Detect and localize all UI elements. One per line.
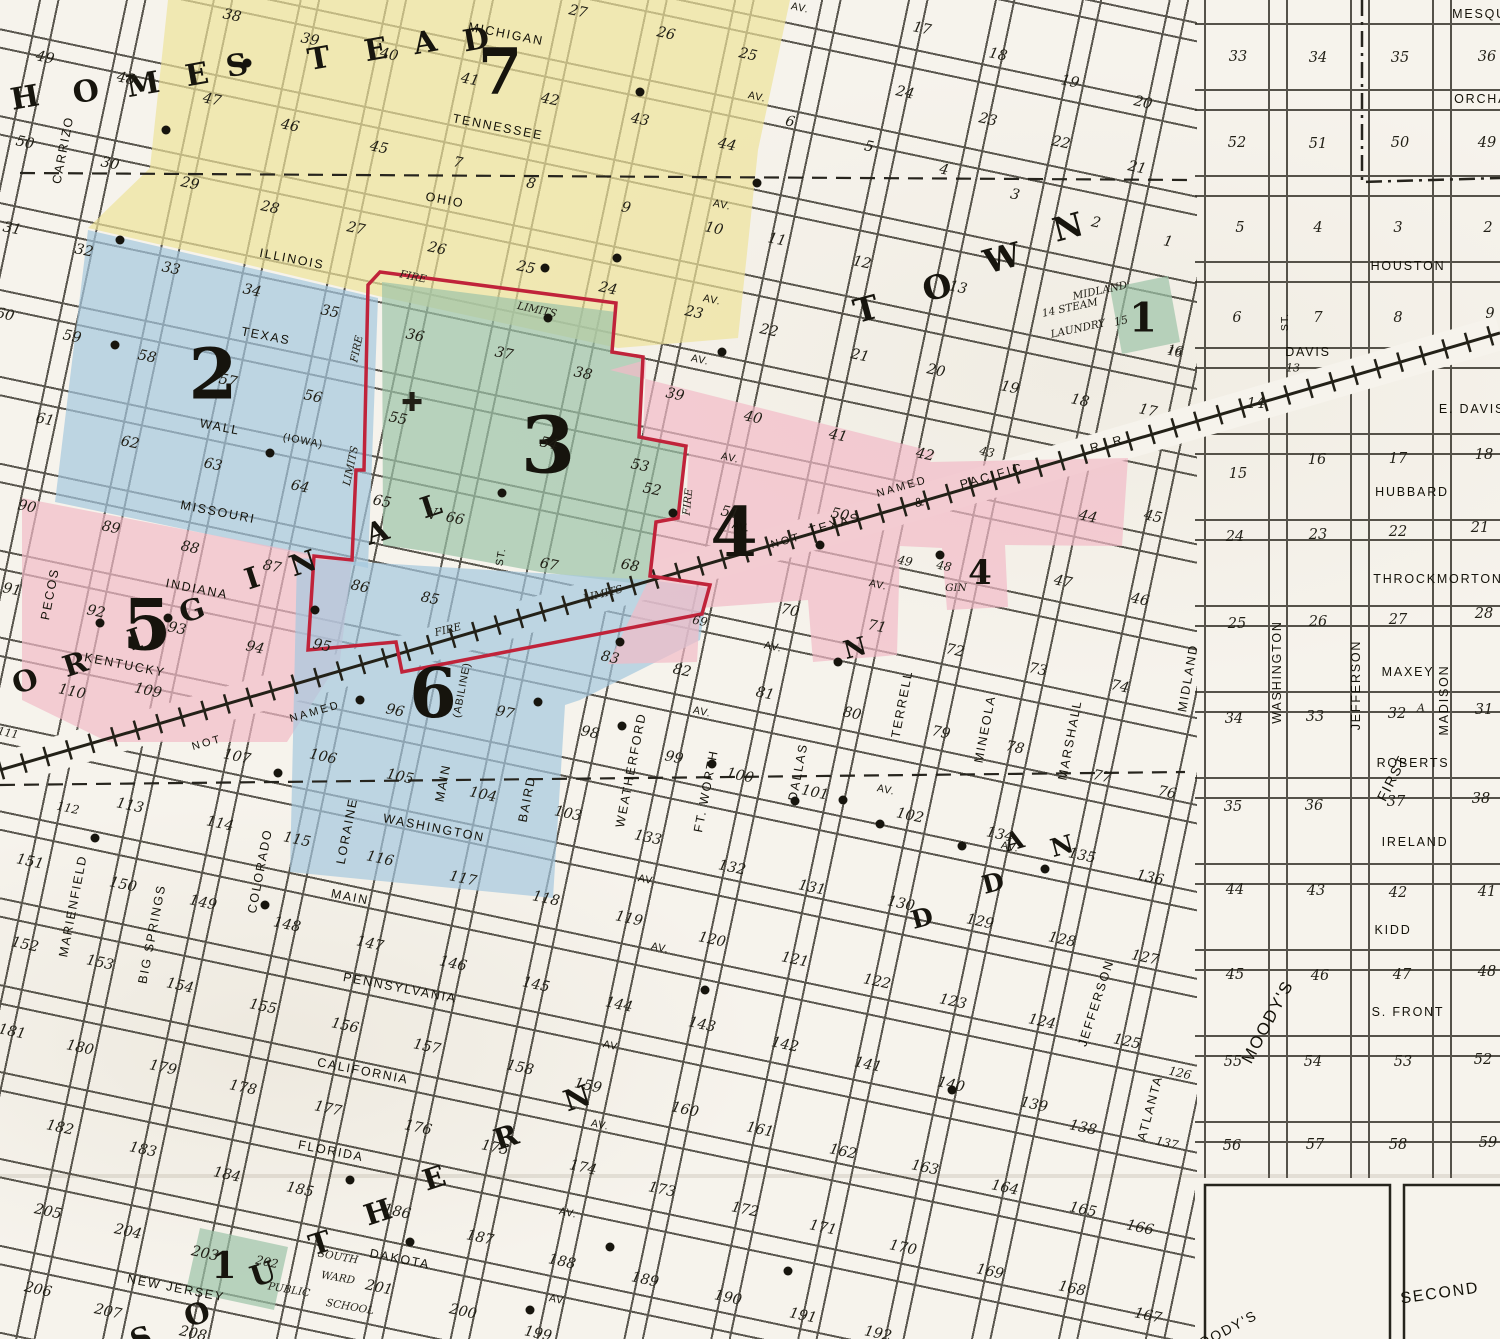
block-number: A	[1417, 702, 1425, 715]
district-number: 7	[478, 35, 523, 110]
block-number: 36	[1478, 49, 1496, 65]
street-name: ORCHARD	[1454, 92, 1500, 106]
block-number: 27	[1389, 612, 1407, 628]
block-number: 35	[1224, 799, 1242, 815]
block-number: 7	[1313, 310, 1322, 326]
block-number: 99	[663, 748, 684, 767]
block-number: 49	[1478, 135, 1496, 151]
street-name: AV.	[876, 782, 896, 798]
block-number: 22	[758, 321, 779, 340]
street-name: AV.	[790, 0, 810, 16]
street-name: ILLINOIS	[258, 246, 325, 272]
block-number: 204	[113, 1221, 143, 1242]
block-number: 4	[938, 161, 950, 179]
street-name: S. FRONT	[1372, 1005, 1445, 1019]
street-name: KIDD	[1374, 923, 1411, 937]
block-number: 180	[65, 1037, 95, 1058]
block-number: 137	[1154, 1134, 1179, 1152]
block-number: 164	[990, 1177, 1020, 1198]
block-number: 34	[241, 281, 262, 300]
block-number: 157	[412, 1036, 442, 1057]
block-number: 39	[664, 385, 685, 404]
intersection-dot	[544, 314, 553, 323]
block-number: 139	[1019, 1094, 1049, 1115]
block-number: 77	[1091, 767, 1112, 786]
block-number: 23	[683, 303, 704, 322]
block-number: 6	[1232, 310, 1241, 326]
addition-letter: O	[8, 661, 43, 701]
block-number: 56	[1223, 1138, 1241, 1154]
block-number: 59	[1479, 1135, 1497, 1151]
street-name: SECOND	[1400, 1280, 1481, 1309]
block-number: 166	[1125, 1217, 1155, 1238]
intersection-dot	[816, 541, 825, 550]
intersection-dot	[266, 449, 275, 458]
block-number: 125	[1112, 1031, 1142, 1052]
intersection-dot	[91, 834, 100, 843]
block-number: 113	[115, 795, 145, 816]
block-number: 24	[597, 279, 618, 298]
block-number: 28	[1475, 606, 1493, 622]
street-name: LORAINE	[334, 797, 361, 866]
intersection-dot	[753, 179, 762, 188]
block-number: 41	[1478, 884, 1496, 900]
street-name: AV.	[548, 1292, 568, 1308]
block-number: 17	[1137, 401, 1158, 420]
block-number: 34	[1309, 50, 1327, 66]
block-number: 146	[438, 953, 468, 974]
street-name: AV.	[712, 197, 732, 213]
block-number: 182	[45, 1117, 75, 1138]
block-number: 5	[1235, 220, 1244, 236]
block-number: 142	[770, 1034, 800, 1055]
block-number: 135	[1067, 845, 1097, 866]
block-number: 3	[1393, 220, 1402, 236]
block-number: 155	[248, 996, 278, 1017]
district-number: 4	[968, 553, 992, 593]
district-number: 5	[123, 584, 172, 667]
street-name: AV.	[1000, 839, 1020, 855]
block-number: 20	[925, 361, 946, 380]
intersection-dot	[708, 760, 717, 769]
block-number: 8	[525, 175, 537, 193]
street-name: AV.	[702, 292, 722, 308]
block-number: 2	[1090, 214, 1102, 232]
street-name: AV.	[650, 940, 670, 956]
railroad-label: NOT	[770, 531, 803, 551]
block-number: 17	[911, 19, 932, 38]
block-number: 94	[244, 638, 265, 657]
street-name: E. DAVIS	[1439, 402, 1500, 416]
block-number: 8	[1393, 310, 1402, 326]
block-number: 35	[1391, 50, 1409, 66]
block-number: 4	[1313, 220, 1322, 236]
block-number: 136	[1135, 867, 1165, 888]
street-name: MAXEY	[1382, 665, 1435, 679]
annotation: FIRE	[433, 621, 462, 639]
street-name: CALIFORNIA	[316, 1055, 410, 1086]
block-number: 111	[0, 724, 20, 741]
block-number: 98	[579, 723, 600, 742]
block-number: 185	[285, 1179, 315, 1200]
block-number: 163	[910, 1157, 940, 1178]
intersection-dot	[356, 696, 365, 705]
intersection-dot	[958, 842, 967, 851]
intersection-dot	[784, 1267, 793, 1276]
block-number: 95	[311, 636, 332, 655]
intersection-dot	[718, 348, 727, 357]
block-number: 88	[179, 538, 200, 557]
block-number: 23	[977, 110, 998, 129]
block-number: 46	[1129, 590, 1150, 609]
block-number: 115	[282, 829, 312, 850]
annotation: PUBLIC	[267, 1280, 311, 1299]
intersection-dot	[111, 341, 120, 350]
street-name: MINEOLA	[972, 694, 999, 764]
block-number: 132	[717, 857, 747, 878]
block-number: 3	[1009, 186, 1021, 204]
intersection-dot	[274, 769, 283, 778]
street-name: MARIENFIELD	[56, 854, 90, 959]
addition-letter: E	[418, 1158, 450, 1197]
annotation: LAUNDRY	[1050, 317, 1107, 340]
street-name: AV.	[763, 639, 783, 655]
intersection-dot	[162, 126, 171, 135]
block-number: 52	[1228, 135, 1246, 151]
addition-letter: N	[1048, 204, 1087, 249]
block-number: 49	[896, 553, 914, 570]
block-number: 177	[313, 1098, 343, 1119]
railroad-label: R. R.	[1088, 431, 1131, 456]
block-number: 15	[1229, 466, 1247, 482]
street-name: CARRIZO	[50, 115, 77, 185]
block-number: 148	[272, 914, 302, 935]
block-number: 121	[780, 949, 810, 970]
addition-letter: N	[285, 543, 321, 584]
street-name: OHIO	[424, 189, 465, 210]
block-number: 17	[1389, 451, 1407, 467]
block-number: 26	[1309, 614, 1327, 630]
street-name: HOUSTON	[1371, 259, 1446, 273]
block-number: 32	[1388, 706, 1406, 722]
annotation: WARD	[320, 1269, 356, 1287]
addition-letter: S	[126, 1319, 156, 1339]
block-number: 44	[1226, 882, 1244, 898]
street-name: MISSOURI	[179, 498, 256, 526]
block-number: 199	[523, 1323, 553, 1339]
block-number: 184	[212, 1164, 242, 1185]
block-number: 122	[862, 971, 892, 992]
street-name: AV.	[692, 704, 712, 720]
block-number: 117	[448, 868, 478, 889]
block-number: 200	[448, 1301, 478, 1322]
intersection-dot	[541, 264, 550, 273]
street-name: FT. WORTH	[691, 748, 721, 833]
block-number: 172	[730, 1199, 760, 1220]
intersection-dot	[311, 606, 320, 615]
block-number: 124	[1027, 1011, 1057, 1032]
street-name: MOODY'S	[1184, 1307, 1260, 1339]
railroad-label: NOT	[191, 733, 224, 753]
block-number: 51	[1309, 136, 1327, 152]
street-name: THROCKMORTON	[1373, 572, 1500, 586]
street-name: WASHINGTON	[382, 811, 486, 844]
block-number: 24	[894, 83, 915, 102]
block-number: 174	[568, 1157, 598, 1178]
block-number: 102	[895, 805, 925, 826]
block-number: 147	[355, 933, 385, 954]
addition-letter: A	[361, 512, 393, 551]
block-number: 65	[371, 492, 392, 511]
block-number: 36	[1305, 798, 1323, 814]
block-number: 130	[886, 893, 916, 914]
intersection-dot	[834, 658, 843, 667]
block-number: 143	[687, 1014, 717, 1035]
street-name: WALL	[199, 416, 242, 438]
annotation: LIMITS	[582, 583, 624, 604]
block-number: 37	[1387, 794, 1405, 810]
block-number: 6	[784, 113, 796, 131]
intersection-dot	[498, 489, 507, 498]
block-number: 107	[222, 746, 252, 767]
block-number: 187	[465, 1227, 495, 1248]
block-number: 46	[279, 116, 300, 135]
block-number: 59	[61, 327, 82, 346]
block-number: 45	[1142, 507, 1163, 526]
block-number: 27	[567, 2, 588, 21]
block-number: 49	[34, 48, 55, 67]
block-number: 112	[55, 799, 80, 817]
block-number: 70	[779, 601, 800, 620]
block-number: 85	[419, 589, 440, 608]
street-name: ST.	[1279, 313, 1291, 331]
block-number: 105	[385, 766, 415, 787]
block-number: 47	[1052, 572, 1073, 591]
block-number: 48	[1478, 964, 1496, 980]
block-number: 55	[1224, 1054, 1242, 1070]
block-number: 153	[85, 952, 115, 973]
block-number: 110	[57, 681, 87, 702]
block-number: 141	[853, 1054, 883, 1075]
block-number: 150	[108, 874, 138, 895]
block-number: 26	[426, 239, 447, 258]
block-number: 16	[1308, 452, 1326, 468]
street-name: AV.	[868, 577, 888, 593]
street-name: TERRELL	[889, 669, 916, 739]
block-number: 126	[1167, 1064, 1192, 1082]
street-name: ST.	[494, 547, 509, 567]
block-number: 55	[387, 409, 408, 428]
block-number: 36	[404, 326, 425, 345]
intersection-dot	[636, 88, 645, 97]
intersection-dot	[534, 698, 543, 707]
block-number: 21	[1126, 158, 1147, 177]
block-number: 37	[493, 344, 514, 363]
block-number: 66	[444, 509, 465, 528]
block-number: 165	[1068, 1199, 1098, 1220]
block-number: 28	[259, 198, 280, 217]
map-labels-layer: HOMESTEADTOWNORIGINALSOUTHERNNANDD723456…	[0, 0, 1500, 1339]
block-number: 41	[459, 70, 480, 89]
block-number: 31	[1475, 702, 1493, 718]
block-number: 71	[866, 617, 887, 636]
addition-letter: T	[849, 287, 883, 331]
block-number: 120	[697, 929, 727, 950]
block-number: 138	[1068, 1117, 1098, 1138]
intersection-dot	[554, 428, 563, 437]
block-number: 27	[345, 219, 366, 238]
block-number: 42	[914, 445, 935, 464]
street-name: (IOWA)	[282, 431, 324, 451]
addition-letter: W	[979, 234, 1025, 281]
intersection-dot	[791, 797, 800, 806]
street-name: AV.	[747, 89, 767, 105]
block-number: 38	[572, 364, 593, 383]
block-number: 23	[1309, 527, 1327, 543]
street-name: MAIN	[330, 886, 370, 907]
street-name: TEXAS	[240, 324, 292, 347]
block-number: 144	[604, 994, 634, 1015]
block-number: 9	[1485, 306, 1494, 322]
block-number: 58	[136, 347, 157, 366]
block-number: 183	[128, 1139, 158, 1160]
street-name: MOODY'S	[1238, 977, 1299, 1067]
street-name: PECOS	[38, 567, 62, 621]
block-number: 145	[521, 974, 551, 995]
block-number: 22	[1389, 524, 1407, 540]
block-number: 123	[938, 991, 968, 1012]
block-number: 18	[1475, 447, 1493, 463]
block-number: 149	[188, 892, 218, 913]
block-number: 33	[1229, 49, 1247, 65]
block-number: 127	[1130, 947, 1160, 968]
block-number: 100	[725, 765, 755, 786]
block-number: 48	[935, 558, 953, 575]
annotation: FIRE	[348, 335, 365, 364]
intersection-dot	[948, 1086, 957, 1095]
block-number: 167	[1133, 1305, 1163, 1326]
intersection-dot	[164, 614, 173, 623]
block-number: 32	[73, 241, 94, 260]
block-number: 109	[133, 680, 163, 701]
block-number: 80	[841, 704, 862, 723]
block-number: 191	[788, 1305, 818, 1326]
street-name: HUBBARD	[1375, 485, 1449, 499]
block-number: 20	[1132, 93, 1153, 112]
block-number: 21	[849, 346, 870, 365]
block-number: 40	[742, 408, 763, 427]
street-name: IRELAND	[1382, 835, 1449, 849]
block-number: 54	[1304, 1054, 1322, 1070]
block-number: 52	[641, 480, 662, 499]
block-number: 69	[691, 613, 709, 630]
street-name: AV.	[590, 1117, 610, 1133]
block-number: 26	[655, 24, 676, 43]
railroad-label: NAMED	[288, 699, 342, 725]
railroad-label: PACIFIC	[958, 460, 1025, 492]
block-number: 15	[1113, 313, 1129, 329]
block-number: 81	[754, 684, 775, 703]
block-number: 42	[539, 90, 560, 109]
block-number: 13	[1286, 362, 1300, 375]
intersection-dot	[261, 901, 270, 910]
block-number: 67	[538, 555, 559, 574]
block-number: 169	[975, 1261, 1005, 1282]
block-number: 25	[515, 258, 536, 277]
block-number: 79	[930, 723, 951, 742]
block-number: 53	[629, 456, 650, 475]
block-number: 19	[1059, 72, 1080, 91]
addition-letter: D	[979, 866, 1007, 900]
block-number: 56	[302, 387, 323, 406]
intersection-dot	[613, 254, 622, 263]
addition-letter: N	[840, 631, 870, 665]
block-number: 178	[228, 1077, 258, 1098]
block-number: 97	[494, 703, 515, 722]
block-number: V	[427, 507, 437, 523]
street-name: AV.	[637, 872, 657, 888]
intersection-dot	[618, 722, 627, 731]
block-number: 103	[553, 803, 583, 824]
block-number: 24	[1226, 529, 1244, 545]
intersection-dot	[526, 1306, 535, 1315]
block-number: 176	[403, 1117, 433, 1138]
block-number: 50	[14, 133, 35, 152]
block-number: 101	[800, 782, 830, 803]
intersection-dot	[1041, 865, 1050, 874]
block-number: 86	[349, 577, 370, 596]
block-number: 46	[1311, 968, 1329, 984]
intersection-dot	[669, 509, 678, 518]
block-number: 12	[851, 253, 872, 272]
block-number: 89	[100, 518, 121, 537]
block-number: 60	[0, 305, 16, 324]
block-number: 18	[987, 45, 1008, 64]
block-number: 192	[863, 1323, 893, 1339]
block-number: 116	[365, 848, 395, 869]
block-number: 47	[201, 90, 222, 109]
addition-letter: A	[410, 24, 439, 63]
block-number: 189	[630, 1269, 660, 1290]
block-number: 74	[1109, 677, 1130, 696]
block-number: 90	[16, 497, 37, 516]
block-number: 118	[531, 888, 561, 909]
block-number: 2	[1483, 220, 1492, 236]
block-number: 43	[629, 110, 650, 129]
intersection-dot	[116, 236, 125, 245]
block-number: 18	[1069, 391, 1090, 410]
block-number: 160	[670, 1099, 700, 1120]
block-number: 16	[1166, 344, 1184, 361]
block-number: 43	[978, 444, 996, 461]
block-number: 91	[1, 580, 22, 599]
block-number: 25	[1228, 616, 1246, 632]
block-number: 190	[713, 1287, 743, 1308]
block-number: 205	[33, 1201, 63, 1222]
block-number: 152	[10, 934, 40, 955]
street-name: AV.	[602, 1038, 622, 1054]
intersection-dot	[936, 551, 945, 560]
block-number: 45	[368, 138, 389, 157]
street-name: AV.	[720, 450, 740, 466]
addition-letter: O	[70, 72, 102, 111]
block-number: 173	[647, 1179, 677, 1200]
block-number: 31	[1, 219, 22, 238]
block-number: 34	[1225, 711, 1243, 727]
block-number: 43	[1307, 883, 1325, 899]
block-number: 179	[148, 1057, 178, 1078]
intersection-dot	[346, 1176, 355, 1185]
